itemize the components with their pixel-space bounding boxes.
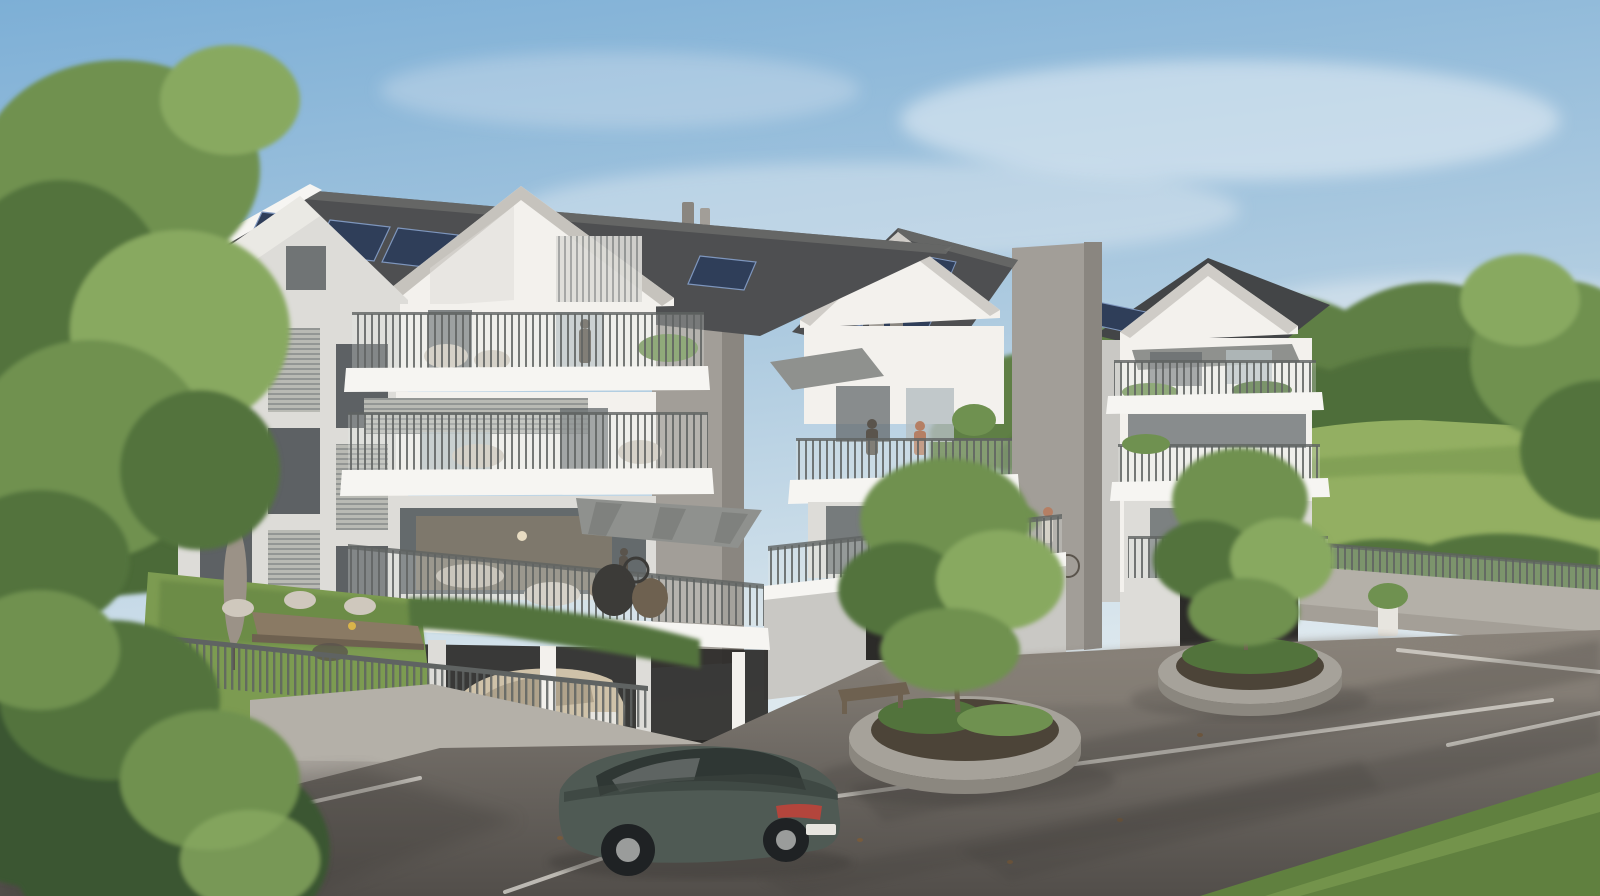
balcony-railing	[352, 314, 704, 370]
fruit-bowl	[348, 622, 356, 630]
render-canvas	[0, 0, 1600, 896]
floor-top	[344, 304, 710, 392]
attic-panel	[286, 246, 326, 290]
license-plate	[806, 824, 836, 835]
balcony-slab	[340, 468, 714, 496]
gable-slat-panel	[556, 236, 642, 302]
lamp-glow	[517, 531, 527, 541]
scene-svg	[0, 0, 1600, 896]
balcony-plant	[952, 404, 996, 436]
door-window	[836, 386, 890, 442]
balcony-railing	[348, 414, 708, 472]
balcony-slab	[344, 366, 710, 392]
tower-shade-edge	[1084, 242, 1102, 650]
balcony-top	[1106, 360, 1324, 414]
balcony-railing	[1114, 362, 1316, 398]
architectural-rendering	[0, 0, 1600, 896]
foreground-coupe	[548, 746, 852, 879]
door-window	[906, 388, 954, 442]
